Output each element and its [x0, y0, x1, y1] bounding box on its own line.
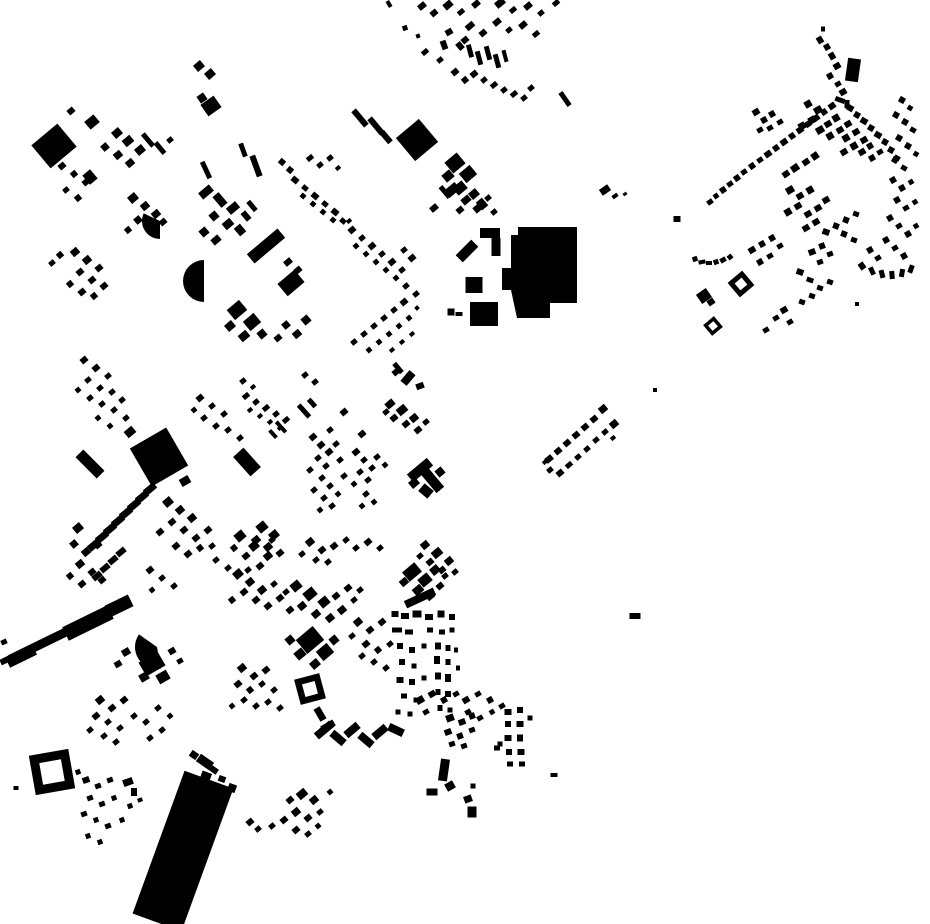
building: [831, 113, 841, 123]
building: [378, 250, 386, 258]
building: [357, 429, 366, 438]
building: [427, 628, 433, 633]
building: [892, 111, 900, 119]
building: [158, 574, 166, 582]
building: [793, 202, 802, 211]
building: [879, 269, 886, 278]
building: [204, 68, 216, 80]
building: [252, 398, 260, 406]
building: [445, 691, 451, 697]
building: [319, 208, 326, 215]
building: [853, 111, 861, 119]
building: [558, 91, 571, 107]
building: [171, 541, 180, 550]
building: [456, 312, 463, 316]
building: [468, 727, 475, 734]
building: [104, 823, 111, 830]
building: [82, 255, 93, 266]
building: [412, 664, 417, 669]
building: [816, 35, 825, 44]
building: [505, 735, 512, 741]
building: [907, 105, 914, 112]
building: [448, 309, 455, 316]
building: [409, 647, 415, 653]
building: [329, 216, 336, 223]
building: [825, 131, 835, 141]
building: [466, 44, 474, 58]
building: [455, 205, 464, 214]
building: [251, 595, 260, 604]
building: [377, 617, 386, 626]
building: [866, 246, 874, 254]
building: [519, 762, 525, 767]
building: [416, 552, 424, 560]
building: [350, 596, 358, 604]
building: [104, 594, 133, 617]
building: [263, 551, 274, 562]
building: [845, 58, 861, 83]
building: [224, 320, 236, 332]
building: [527, 84, 535, 92]
building: [460, 35, 469, 44]
building: [882, 236, 890, 244]
building: [66, 572, 74, 580]
building: [450, 628, 455, 633]
building: [77, 579, 86, 588]
building: [350, 480, 357, 487]
building: [309, 658, 321, 670]
building: [360, 330, 368, 338]
building: [466, 277, 483, 293]
building: [130, 427, 188, 486]
building: [412, 290, 420, 298]
building: [134, 144, 146, 156]
building: [212, 192, 227, 208]
building: [772, 144, 780, 152]
building: [790, 163, 801, 173]
building: [698, 259, 706, 264]
building: [358, 502, 365, 509]
building: [155, 670, 170, 685]
building: [444, 152, 465, 173]
building: [385, 330, 392, 337]
building: [80, 811, 87, 818]
building: [290, 175, 299, 184]
building: [392, 628, 402, 633]
building: [456, 666, 460, 671]
building: [706, 198, 714, 206]
building: [326, 154, 334, 162]
building: [448, 708, 453, 713]
building: [237, 663, 248, 674]
building: [450, 67, 459, 76]
building: [316, 808, 324, 816]
building: [111, 127, 123, 139]
building: [740, 168, 748, 176]
building: [468, 807, 477, 818]
building: [308, 432, 317, 441]
building: [475, 51, 483, 66]
building: [397, 643, 403, 649]
building: [258, 680, 266, 688]
building: [137, 797, 143, 802]
building: [70, 247, 81, 258]
building: [571, 430, 580, 439]
building: [243, 313, 261, 331]
building: [306, 466, 314, 474]
building: [179, 475, 192, 487]
building: [227, 300, 248, 320]
building: [760, 116, 768, 124]
building: [301, 371, 309, 379]
building: [469, 69, 478, 78]
building: [851, 128, 860, 137]
building: [417, 1, 427, 11]
building: [768, 110, 776, 118]
building: [340, 472, 348, 480]
building: [827, 102, 836, 111]
building: [166, 136, 174, 144]
building: [127, 192, 139, 204]
building: [239, 587, 248, 596]
building: [381, 461, 388, 468]
building: [370, 322, 378, 330]
building: [279, 815, 288, 824]
building: [565, 461, 574, 469]
building: [517, 721, 524, 727]
building: [246, 200, 258, 212]
building: [291, 825, 300, 834]
building: [474, 690, 482, 697]
building: [146, 734, 154, 742]
building: [267, 419, 273, 425]
building: [362, 490, 370, 498]
building: [850, 237, 857, 244]
building: [713, 259, 719, 265]
building: [828, 51, 837, 60]
building: [222, 218, 235, 231]
building: [264, 698, 272, 706]
building: [427, 690, 436, 699]
building: [282, 588, 290, 596]
building: [876, 148, 884, 155]
building: [277, 270, 304, 296]
building: [858, 261, 867, 270]
building: [461, 696, 470, 705]
building: [224, 426, 232, 434]
building: [86, 795, 93, 802]
building: [889, 176, 897, 184]
building: [781, 170, 790, 179]
building: [212, 556, 220, 564]
building: [339, 407, 348, 416]
building: [494, 0, 506, 9]
courtyard-building: [703, 316, 723, 336]
building: [476, 714, 484, 721]
building: [330, 207, 339, 216]
building: [415, 382, 425, 390]
building: [421, 48, 430, 56]
building: [459, 165, 477, 183]
building: [408, 477, 420, 489]
building: [801, 224, 810, 233]
building: [881, 138, 889, 146]
building: [899, 269, 905, 278]
building: [263, 601, 272, 610]
building: [226, 201, 240, 215]
building: [785, 185, 795, 195]
building: [353, 617, 364, 628]
building: [826, 251, 833, 258]
building: [311, 609, 322, 620]
building: [776, 242, 784, 249]
building: [505, 26, 513, 34]
building: [195, 393, 204, 402]
building: [611, 193, 618, 200]
building: [442, 0, 453, 11]
building: [303, 813, 312, 822]
building: [818, 242, 826, 250]
building: [405, 314, 412, 321]
building: [420, 540, 431, 551]
building: [518, 749, 525, 755]
building: [142, 718, 150, 726]
building: [766, 124, 774, 131]
building: [239, 377, 247, 385]
building: [285, 605, 294, 614]
building: [364, 476, 372, 484]
building: [492, 17, 502, 27]
building: [256, 328, 267, 339]
building: [312, 556, 320, 564]
building: [122, 777, 134, 787]
building: [913, 151, 920, 158]
building: [158, 726, 166, 734]
building: [113, 150, 124, 161]
building: [119, 817, 125, 823]
building: [118, 396, 126, 404]
building: [493, 54, 501, 69]
building: [321, 200, 329, 208]
building: [98, 400, 106, 408]
building: [352, 544, 360, 552]
building: [891, 244, 899, 251]
building: [692, 256, 698, 262]
building: [396, 404, 409, 417]
building: [413, 611, 422, 618]
building: [121, 647, 131, 657]
building: [75, 267, 84, 276]
building: [233, 529, 246, 542]
building: [598, 404, 609, 415]
building: [776, 118, 784, 125]
building: [471, 0, 481, 9]
building: [399, 297, 408, 306]
building: [14, 786, 19, 790]
building: [796, 268, 805, 276]
building: [242, 392, 251, 400]
building: [843, 120, 852, 129]
courtyard-building: [29, 749, 75, 795]
building: [326, 788, 333, 795]
building: [365, 625, 374, 634]
building: [326, 482, 334, 490]
building: [492, 238, 501, 256]
building: [233, 448, 261, 477]
building: [889, 271, 895, 279]
building: [154, 704, 162, 712]
building: [772, 314, 780, 321]
building: [240, 210, 251, 222]
building: [461, 76, 469, 84]
building: [500, 86, 508, 94]
building: [90, 292, 98, 300]
building: [261, 665, 270, 674]
building: [96, 384, 104, 392]
building: [208, 402, 216, 410]
building: [317, 595, 330, 608]
building: [94, 263, 103, 272]
building: [609, 419, 620, 430]
building: [399, 659, 405, 665]
building: [116, 724, 124, 732]
building: [456, 732, 464, 740]
building: [86, 394, 94, 402]
building: [766, 252, 774, 259]
building: [912, 199, 919, 206]
building: [859, 117, 868, 126]
building: [175, 505, 186, 516]
building: [589, 414, 598, 423]
building: [425, 614, 433, 620]
building: [245, 817, 254, 826]
building: [356, 586, 364, 594]
building: [342, 536, 350, 544]
building: [276, 704, 284, 712]
building: [445, 674, 451, 682]
building: [429, 8, 438, 17]
building: [463, 794, 473, 803]
building: [208, 542, 216, 550]
building: [449, 614, 455, 620]
building: [244, 566, 252, 574]
building: [220, 410, 228, 418]
building: [167, 517, 176, 526]
building: [255, 561, 264, 570]
building: [452, 690, 460, 697]
building: [313, 706, 326, 722]
building: [552, 0, 561, 7]
building: [272, 410, 280, 418]
building: [69, 539, 79, 549]
building: [460, 743, 467, 750]
building: [255, 520, 268, 533]
building: [316, 506, 323, 513]
building: [810, 151, 820, 161]
building: [592, 436, 600, 444]
building: [520, 94, 528, 102]
building: [278, 158, 286, 166]
building: [489, 709, 496, 716]
building: [537, 9, 545, 17]
building: [480, 228, 500, 238]
building: [414, 305, 420, 311]
building: [908, 179, 915, 186]
building: [456, 240, 479, 263]
building: [360, 456, 368, 464]
building: [74, 386, 81, 393]
building: [329, 541, 338, 550]
building: [347, 225, 356, 234]
building: [230, 544, 238, 552]
building: [282, 416, 291, 424]
building: [247, 229, 285, 264]
building: [328, 634, 339, 645]
building: [484, 46, 492, 61]
building: [401, 419, 410, 428]
building: [62, 186, 70, 194]
building: [762, 326, 770, 333]
building: [786, 318, 794, 325]
building: [232, 568, 244, 580]
building: [339, 217, 347, 225]
building: [630, 613, 641, 619]
building: [309, 200, 316, 207]
building: [130, 712, 138, 720]
building: [363, 537, 372, 546]
building: [517, 707, 523, 713]
building: [262, 404, 271, 412]
building: [145, 565, 154, 574]
building: [304, 830, 312, 838]
building: [756, 126, 764, 133]
building: [490, 81, 499, 89]
building: [110, 406, 118, 414]
building: [314, 822, 321, 829]
building: [379, 130, 393, 145]
building: [783, 207, 793, 217]
building: [190, 406, 197, 413]
building: [733, 174, 741, 182]
building: [907, 264, 914, 273]
building: [324, 558, 332, 566]
building: [122, 414, 130, 422]
building: [395, 322, 402, 329]
building: [465, 21, 476, 31]
large-hall: [502, 227, 577, 318]
building: [895, 222, 903, 229]
building: [494, 746, 500, 751]
building: [458, 718, 467, 726]
building: [127, 803, 133, 809]
building: [224, 564, 232, 572]
building: [376, 544, 384, 552]
building: [816, 285, 823, 292]
building: [212, 422, 220, 430]
building: [821, 196, 830, 205]
building: [510, 90, 519, 98]
building: [484, 194, 492, 202]
building: [31, 124, 76, 169]
building: [370, 658, 378, 666]
building: [91, 711, 100, 720]
building: [250, 384, 256, 390]
building: [751, 108, 760, 117]
building: [75, 769, 81, 775]
building: [365, 346, 372, 353]
building: [855, 302, 859, 306]
building: [228, 702, 235, 709]
